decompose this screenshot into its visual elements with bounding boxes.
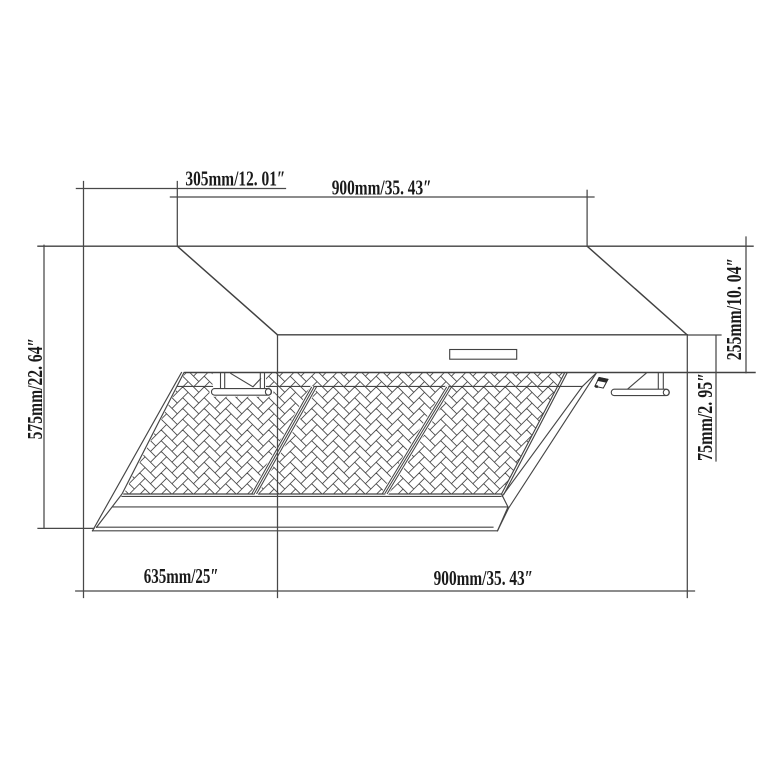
- svg-text:75mm/2. 95″: 75mm/2. 95″: [693, 373, 717, 461]
- svg-text:635mm/25″: 635mm/25″: [144, 564, 219, 588]
- svg-text:255mm/10. 04″: 255mm/10. 04″: [722, 258, 746, 361]
- svg-text:900mm/35. 43″: 900mm/35. 43″: [332, 175, 432, 199]
- svg-text:575mm/22. 64″: 575mm/22. 64″: [23, 338, 47, 440]
- svg-text:305mm/12. 01″: 305mm/12. 01″: [185, 167, 285, 191]
- svg-text:900mm/35. 43″: 900mm/35. 43″: [434, 566, 534, 590]
